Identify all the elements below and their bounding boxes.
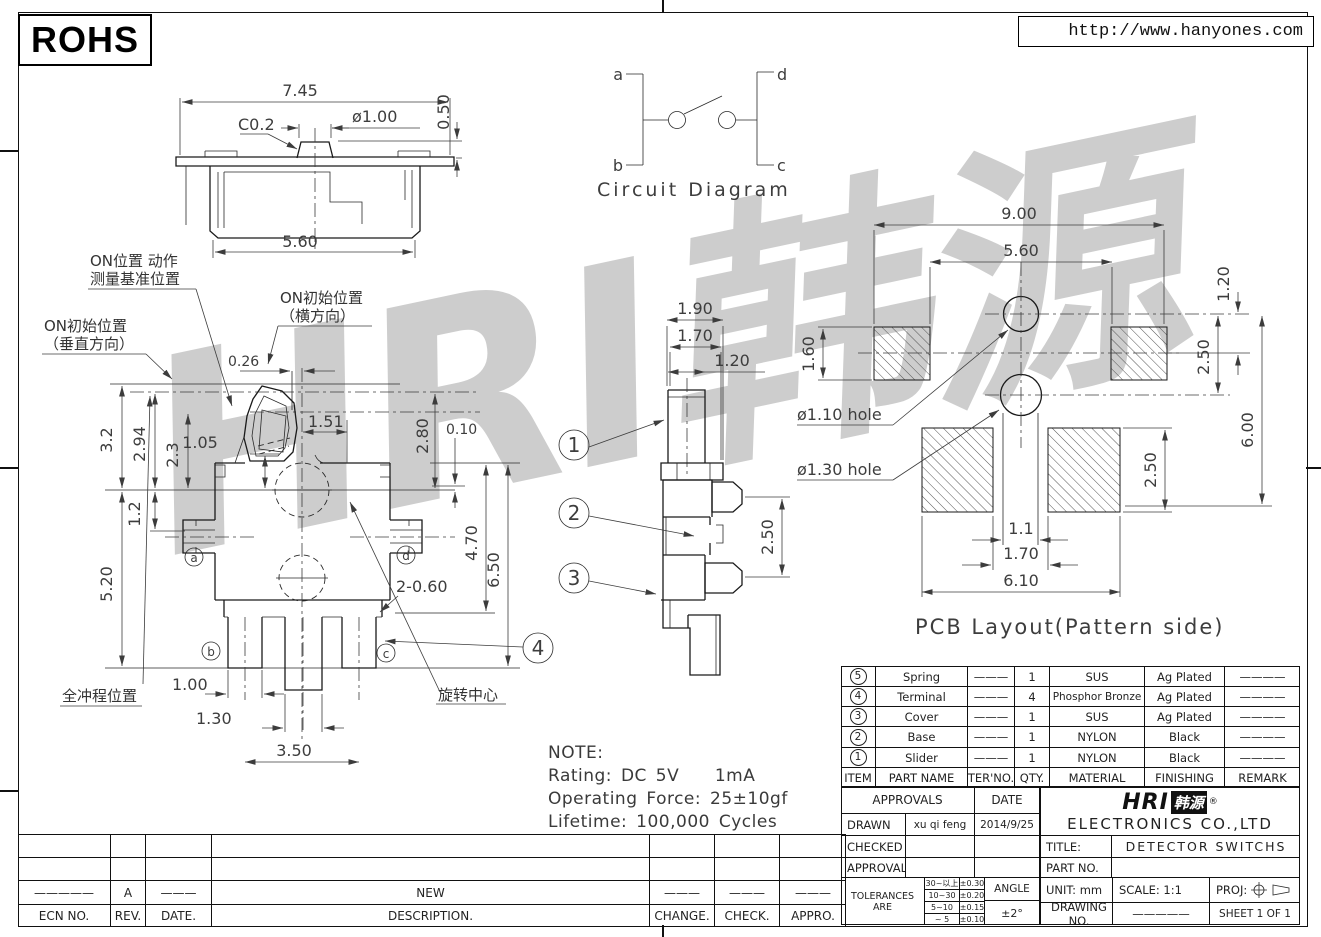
annotation-full-stroke: 全冲程位置: [62, 687, 137, 705]
terminal-a-label: a: [613, 65, 623, 84]
dim-pcb-160: 1.60: [799, 336, 818, 372]
pcb-layout: 9.00 5.60 1.60 1.20 2.50 6.00 2.50 1.1 1…: [795, 195, 1315, 660]
dim-top-height: 0.50: [434, 94, 453, 130]
hole-110-label: ø1.10 hole: [797, 405, 882, 424]
annotation-on-pos-2: 测量基准位置: [90, 270, 180, 288]
revision-table-border: [18, 834, 846, 927]
dim-pcb-900: 9.00: [1001, 204, 1037, 223]
dim-pcb-11: 1.1: [1008, 519, 1033, 538]
terminal-label-b: b: [202, 642, 220, 660]
svg-text:a: a: [190, 551, 197, 565]
annotation-on-init-h-2: （横方向）: [280, 307, 355, 325]
frame-tick: [0, 150, 18, 152]
dim-top-chamfer: C0.2: [238, 115, 275, 134]
drawing-sheet: HRI韩源 ROHS http://www.hanyones.com 7.45 …: [0, 0, 1321, 937]
pcb-layout-title: PCB Layout(Pattern side): [915, 615, 1224, 639]
annotation-on-pos-1: ON位置 动作: [90, 252, 178, 270]
title-block-border: [841, 787, 1300, 925]
note-title: NOTE:: [548, 743, 603, 763]
dim-front-294: 2.94: [130, 426, 149, 462]
title-block: APPROVALS DATE DRAWN xu qi feng 2014/9/2…: [841, 787, 1300, 925]
frame-tick: [662, 0, 664, 12]
dim-front-23: 2.3: [163, 442, 182, 467]
dim-front-010: 0.10: [446, 422, 477, 438]
note-lifetime: Lifetime: 100,000 Cycles: [548, 812, 777, 832]
dim-front-151: 1.51: [308, 412, 344, 431]
callout-1: 1: [559, 420, 664, 460]
dim-front-2060: 2-0.60: [396, 577, 448, 596]
dim-pcb-170: 1.70: [1003, 544, 1039, 563]
circuit-diagram: a b d c Circuit Diagram: [590, 55, 805, 210]
dim-top-shaft-dia: ø1.00: [352, 107, 397, 126]
dim-front-350: 3.50: [276, 741, 312, 760]
dim-pcb-250-top: 2.50: [1194, 339, 1213, 375]
website-url: http://www.hanyones.com: [1018, 16, 1314, 47]
dim-side-190: 1.90: [677, 299, 713, 318]
revision-table: ————— A ——— NEW ——— ——— ——— ECN NO. REV.…: [18, 834, 846, 927]
title-block-divider: [1040, 787, 1041, 925]
pad-upper-left: [874, 327, 930, 380]
dim-pcb-250-bottom: 2.50: [1141, 452, 1160, 488]
dim-front-32: 3.2: [97, 427, 116, 452]
dim-side-250: 2.50: [758, 519, 777, 555]
front-view: 0.26 1.51 2.80 0.10 1.05 2.3 2.94 3.2 1.…: [40, 240, 585, 785]
dim-front-12: 1.2: [125, 501, 144, 526]
terminal-label-d: d: [397, 546, 415, 564]
pad-lower-left: [922, 428, 993, 512]
projection-symbol-icon: [1251, 882, 1293, 898]
dim-front-520: 5.20: [97, 566, 116, 602]
terminal-label-c: c: [377, 644, 395, 662]
svg-text:2: 2: [568, 501, 581, 525]
circuit-diagram-title: Circuit Diagram: [597, 179, 791, 201]
dim-front-100: 1.00: [172, 675, 208, 694]
svg-text:3: 3: [568, 566, 581, 590]
annotation-on-init-v-2: （垂直方向）: [44, 335, 134, 353]
dim-side-170: 1.70: [677, 326, 713, 345]
dim-side-120: 1.20: [714, 351, 750, 370]
dim-front-105: 1.05: [182, 433, 218, 452]
annotation-on-init-v-1: ON初始位置: [44, 317, 127, 335]
dim-pcb-600: 6.00: [1238, 412, 1257, 448]
dim-front-026: 0.26: [228, 354, 259, 370]
dim-front-280: 2.80: [413, 418, 432, 454]
frame-tick: [0, 467, 18, 469]
svg-text:c: c: [383, 647, 390, 661]
side-view: 1.90 1.70 1.20 2.50 1 2 3: [520, 285, 800, 710]
svg-text:b: b: [207, 645, 215, 659]
dim-pcb-560: 5.60: [1003, 241, 1039, 260]
note-block: NOTE: Rating: DC 5V 1mA Operating Force:…: [548, 742, 788, 834]
hole-130-label: ø1.30 hole: [797, 460, 882, 479]
parts-table: 5 Spring ——— 1 SUS Ag Plated ———— 4 Term…: [841, 666, 1300, 787]
pad-lower-right: [1048, 428, 1120, 512]
dim-front-470: 4.70: [462, 525, 481, 561]
note-rating: Rating: DC 5V 1mA: [548, 766, 755, 786]
pad-upper-right: [1111, 327, 1167, 380]
terminal-b-label: b: [613, 156, 623, 175]
dim-pcb-610: 6.10: [1003, 571, 1039, 590]
dim-front-130: 1.30: [196, 709, 232, 728]
dim-pcb-120: 1.20: [1214, 266, 1233, 302]
callout-3: 3: [559, 563, 656, 594]
rohs-badge: ROHS: [18, 14, 152, 66]
parts-table-border: [841, 666, 1300, 787]
svg-text:1: 1: [568, 433, 581, 457]
svg-text:d: d: [402, 549, 410, 563]
terminal-c-label: c: [777, 156, 786, 175]
annotation-on-init-h-1: ON初始位置: [280, 289, 363, 307]
dim-front-650: 6.50: [484, 552, 503, 588]
frame-tick: [0, 790, 18, 792]
dim-top-width: 7.45: [282, 81, 318, 100]
note-operating-force: Operating Force: 25±10gf: [548, 789, 788, 809]
annotation-rotation-center: 旋转中心: [438, 686, 498, 704]
terminal-label-a: a: [185, 548, 203, 566]
terminal-d-label: d: [777, 65, 787, 84]
